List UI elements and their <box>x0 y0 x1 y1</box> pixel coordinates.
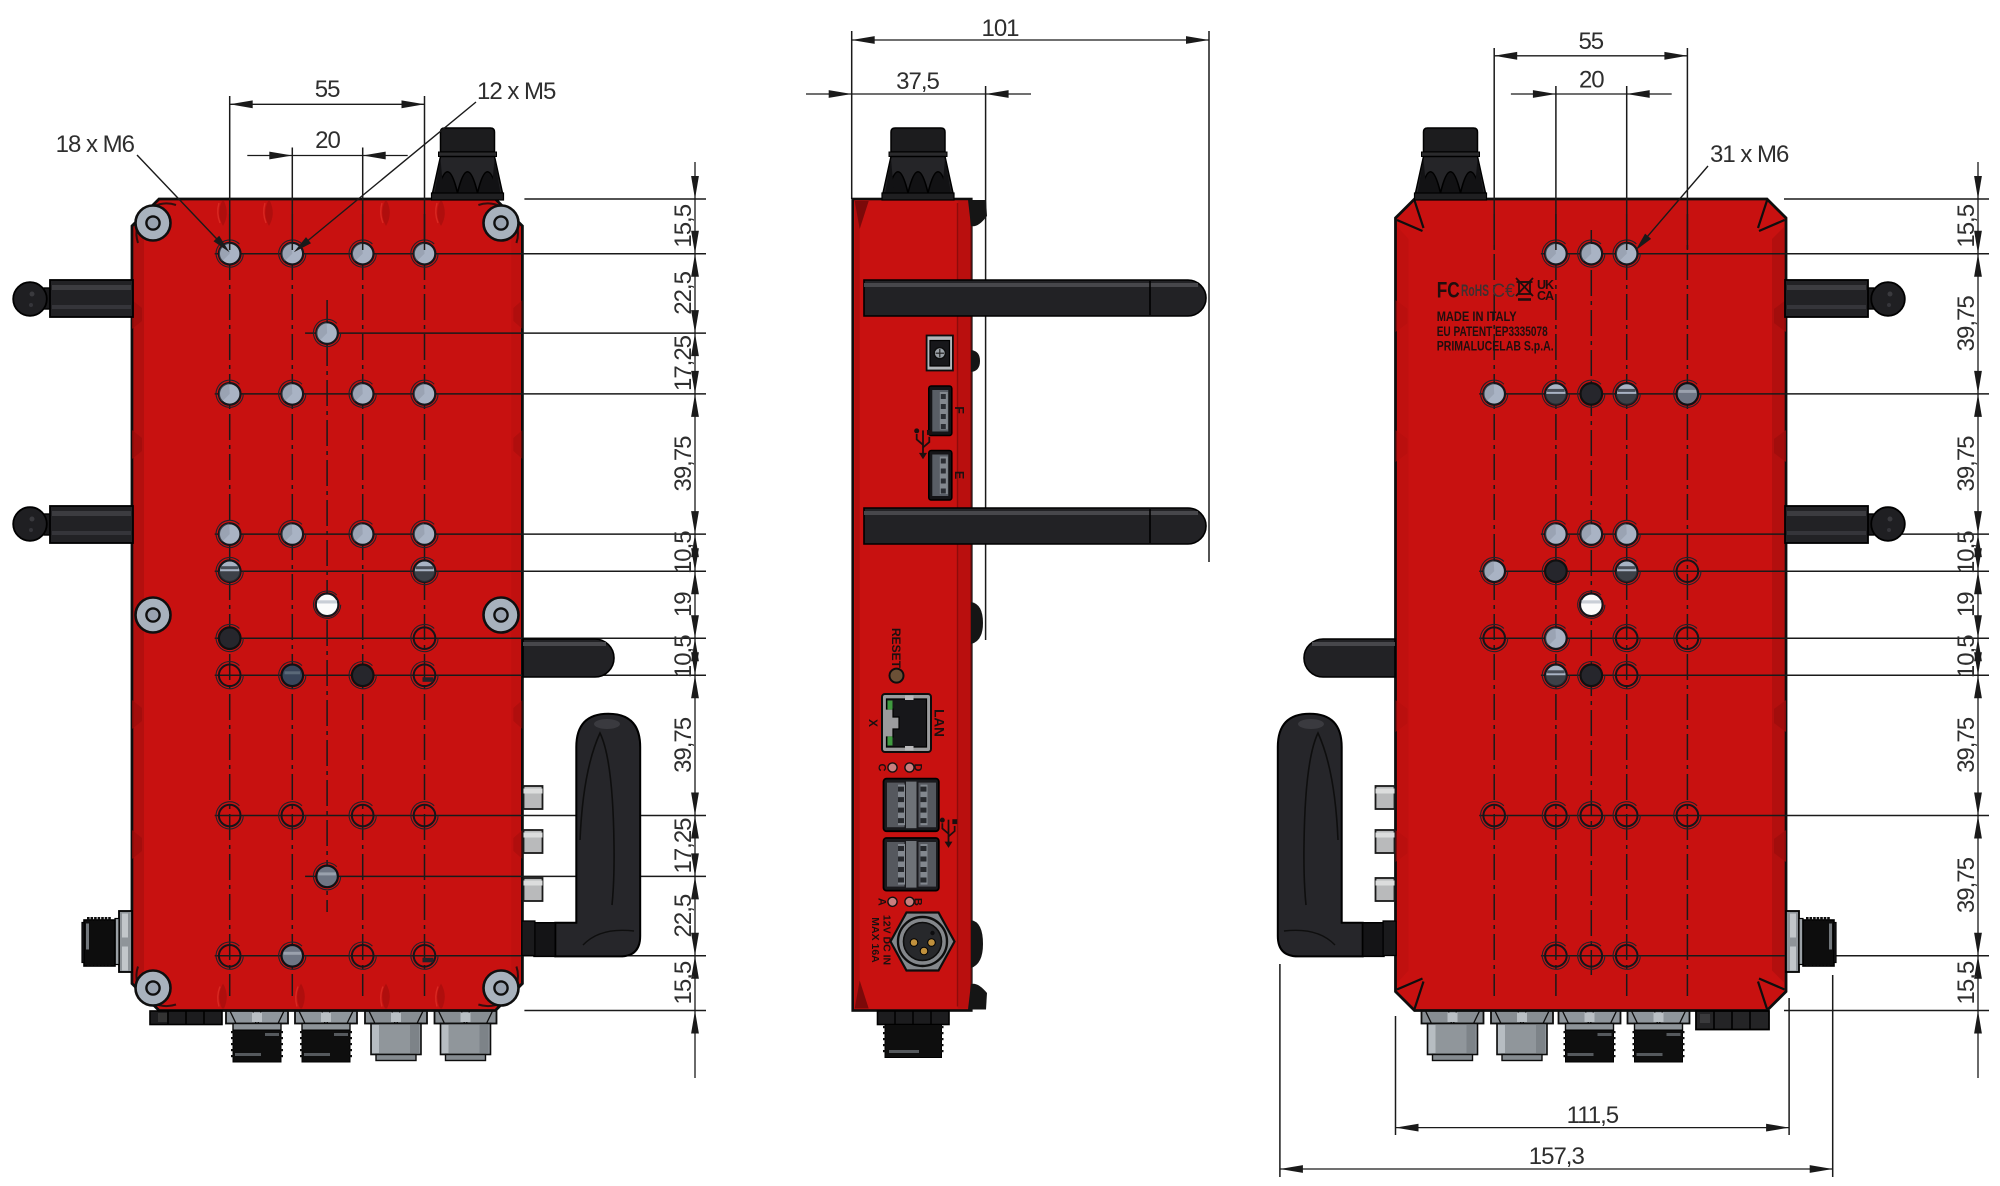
svg-text:F: F <box>952 406 966 414</box>
svg-text:18 x M6: 18 x M6 <box>56 131 135 158</box>
svg-text:10,5: 10,5 <box>1953 531 1980 574</box>
svg-text:D: D <box>912 764 924 772</box>
svg-text:PRIMALUCELAB S.p.A.: PRIMALUCELAB S.p.A. <box>1437 339 1554 354</box>
svg-text:22,5: 22,5 <box>670 271 697 314</box>
svg-text:12 x M5: 12 x M5 <box>477 78 556 105</box>
svg-text:EU PATENT EP3335078: EU PATENT EP3335078 <box>1437 324 1548 339</box>
svg-text:A: A <box>876 898 888 906</box>
svg-text:22,5: 22,5 <box>670 894 697 937</box>
svg-text:15,5: 15,5 <box>670 961 697 1004</box>
svg-text:CA: CA <box>1537 289 1554 303</box>
svg-text:MADE IN ITALY: MADE IN ITALY <box>1437 309 1517 324</box>
svg-text:LAN: LAN <box>932 709 947 737</box>
svg-text:39,75: 39,75 <box>1953 296 1980 352</box>
svg-text:157,3: 157,3 <box>1529 1143 1585 1170</box>
svg-text:RoHS: RoHS <box>1461 281 1489 300</box>
svg-text:39,75: 39,75 <box>1953 857 1980 913</box>
svg-text:B: B <box>912 898 924 906</box>
svg-text:39,75: 39,75 <box>1953 436 1980 492</box>
svg-text:111,5: 111,5 <box>1567 1102 1619 1129</box>
svg-text:19: 19 <box>1953 592 1980 617</box>
svg-text:39,75: 39,75 <box>1953 717 1980 773</box>
svg-text:15,5: 15,5 <box>1953 204 1980 247</box>
svg-text:10,5: 10,5 <box>670 531 697 574</box>
svg-text:12V DC IN: 12V DC IN <box>881 915 893 965</box>
svg-text:C: C <box>876 764 888 772</box>
svg-text:X: X <box>866 719 880 727</box>
svg-text:C€: C€ <box>1492 281 1515 302</box>
svg-text:MAX 16A: MAX 16A <box>869 917 881 963</box>
svg-text:17,25: 17,25 <box>670 335 697 391</box>
svg-text:39,75: 39,75 <box>670 717 697 773</box>
svg-text:RESET: RESET <box>889 628 903 669</box>
svg-text:101: 101 <box>981 15 1019 42</box>
svg-text:55: 55 <box>315 76 340 103</box>
svg-text:10,5: 10,5 <box>1953 635 1980 678</box>
svg-text:55: 55 <box>1578 28 1603 55</box>
svg-text:FC: FC <box>1437 278 1460 303</box>
svg-text:E: E <box>952 471 966 479</box>
svg-text:15,5: 15,5 <box>670 204 697 247</box>
svg-text:20: 20 <box>1579 67 1604 94</box>
svg-text:19: 19 <box>670 592 697 617</box>
svg-text:31 x M6: 31 x M6 <box>1710 141 1789 168</box>
svg-text:37,5: 37,5 <box>896 68 939 95</box>
svg-text:10,5: 10,5 <box>670 635 697 678</box>
svg-text:15,5: 15,5 <box>1953 961 1980 1004</box>
svg-text:20: 20 <box>315 127 340 154</box>
svg-text:17,25: 17,25 <box>670 818 697 874</box>
svg-text:39,75: 39,75 <box>670 436 697 492</box>
